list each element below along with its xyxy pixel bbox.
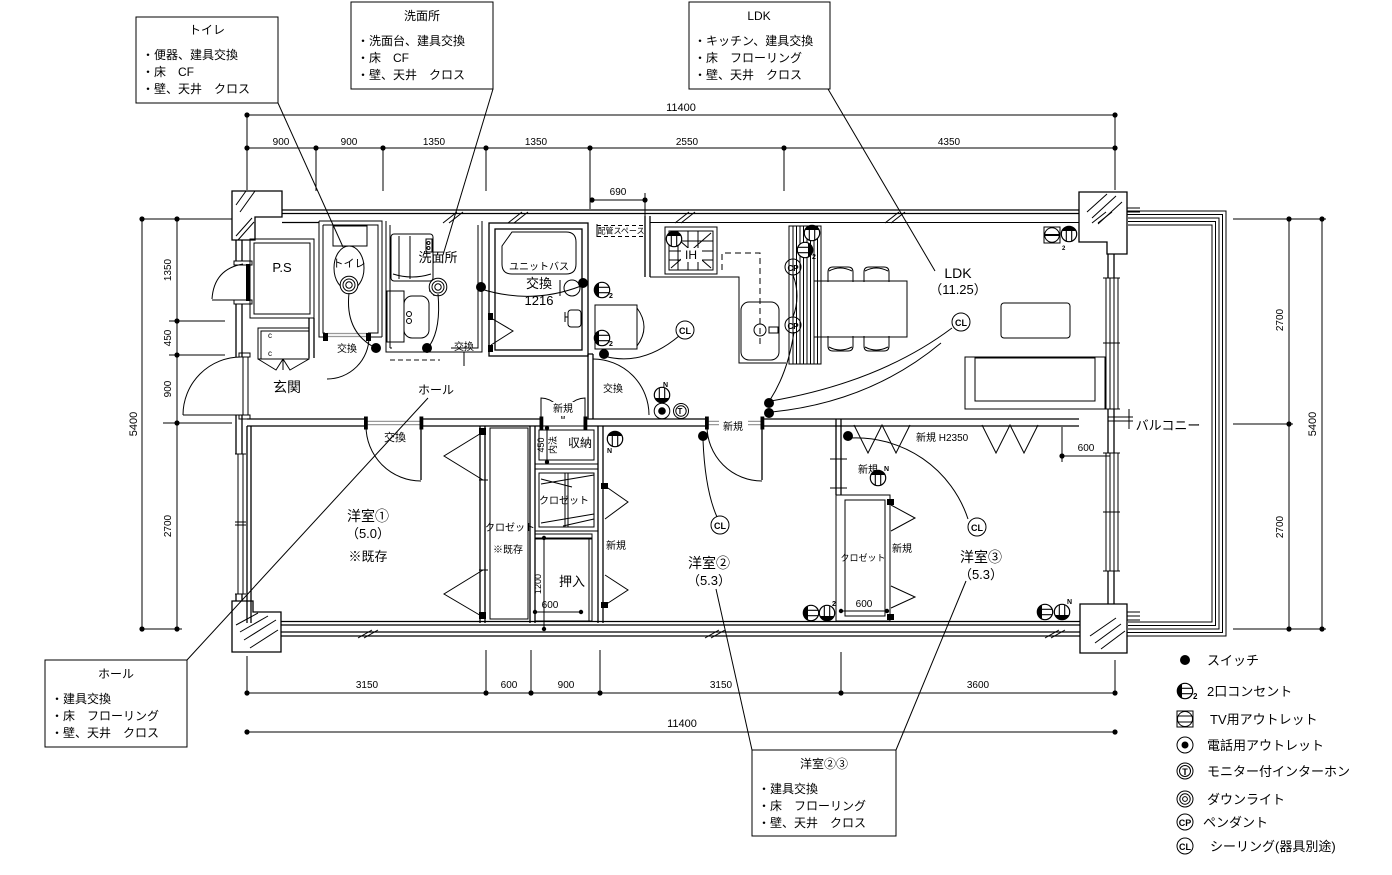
svg-text:交換: 交換: [454, 340, 474, 353]
svg-text:2700: 2700: [1275, 515, 1286, 538]
svg-text:洋室①: 洋室①: [347, 508, 389, 524]
svg-text:・建具交換: ・建具交換: [51, 691, 111, 706]
svg-text:配管スペース: 配管スペース: [597, 226, 644, 236]
svg-text:900: 900: [273, 137, 290, 148]
svg-text:・床 フローリング: ・床 フローリング: [758, 799, 866, 813]
svg-text:3150: 3150: [356, 680, 379, 691]
svg-text:新規 H2350: 新規 H2350: [916, 431, 969, 444]
svg-text:T: T: [678, 407, 683, 416]
svg-text:ユニットバス: ユニットバス: [509, 261, 569, 273]
svg-text:2: 2: [609, 293, 613, 300]
svg-text:・キッチン、建具交換: ・キッチン、建具交換: [694, 33, 813, 48]
svg-text:2700: 2700: [163, 514, 174, 537]
svg-text:トイレ: トイレ: [333, 258, 366, 270]
svg-text:玄関: 玄関: [273, 379, 301, 395]
svg-text:2: 2: [812, 254, 816, 261]
svg-text:新規: 新規: [892, 542, 912, 555]
svg-text:・床 CF: ・床 CF: [357, 51, 409, 65]
svg-text:（5.3）: （5.3）: [687, 573, 731, 588]
svg-text:洋室③: 洋室③: [960, 549, 1002, 565]
svg-text:LDK: LDK: [747, 9, 770, 23]
svg-text:クロゼット: クロゼット: [840, 552, 885, 563]
svg-text:900: 900: [341, 137, 358, 148]
svg-text:モニター付インターホン: モニター付インターホン: [1207, 764, 1350, 779]
svg-text:P.S: P.S: [272, 260, 292, 275]
svg-text:2: 2: [832, 601, 836, 608]
svg-text:新規: 新規: [723, 420, 743, 433]
svg-text:新規: 新規: [553, 402, 573, 415]
svg-text:新規: 新規: [606, 539, 626, 552]
svg-text:4350: 4350: [938, 137, 961, 148]
svg-text:洋室②: 洋室②: [688, 555, 730, 571]
svg-text:スイッチ: スイッチ: [1207, 653, 1259, 668]
svg-text:2口コンセント: 2口コンセント: [1207, 684, 1292, 699]
svg-text:690: 690: [610, 187, 627, 198]
svg-text:・便器、建具交換: ・便器、建具交換: [142, 47, 238, 62]
svg-text:ダウンライト: ダウンライト: [1207, 792, 1285, 807]
svg-text:N: N: [1067, 599, 1072, 606]
svg-text:CL: CL: [714, 521, 726, 531]
svg-text:2700: 2700: [1275, 308, 1286, 331]
svg-text:交換: 交換: [603, 382, 623, 395]
svg-text:IH: IH: [685, 248, 697, 262]
svg-text:洗面所: 洗面所: [418, 250, 457, 265]
svg-text:TV用アウトレット: TV用アウトレット: [1210, 712, 1318, 727]
svg-text:クロゼット: クロゼット: [539, 495, 589, 507]
svg-text:シーリング(器具別途): シーリング(器具別途): [1210, 839, 1336, 854]
svg-text:1350: 1350: [423, 137, 446, 148]
svg-text:2: 2: [609, 341, 613, 348]
svg-text:・壁、天井 クロス: ・壁、天井 クロス: [758, 815, 866, 830]
svg-text:450: 450: [536, 437, 546, 452]
svg-text:5400: 5400: [1307, 412, 1319, 436]
svg-text:トイレ: トイレ: [189, 23, 225, 37]
svg-text:（11.25）: （11.25）: [929, 282, 987, 297]
svg-text:1350: 1350: [525, 137, 548, 148]
svg-text:CL: CL: [1179, 842, 1191, 852]
svg-text:600: 600: [856, 599, 873, 610]
svg-text:・洗面台、建具交換: ・洗面台、建具交換: [357, 33, 465, 48]
svg-text:※既存: ※既存: [348, 549, 387, 564]
svg-text:3600: 3600: [967, 680, 990, 691]
svg-text:洗面所: 洗面所: [404, 9, 440, 23]
svg-text:交換: 交換: [337, 342, 357, 355]
svg-text:11400: 11400: [667, 718, 697, 730]
svg-text:洋室②③: 洋室②③: [800, 756, 848, 771]
svg-text:LDK: LDK: [944, 265, 972, 281]
svg-text:クロゼット: クロゼット: [485, 522, 535, 534]
svg-text:c: c: [268, 331, 272, 340]
svg-text:押入: 押入: [559, 574, 585, 589]
svg-text:1200: 1200: [533, 574, 543, 594]
svg-text:N: N: [607, 448, 612, 455]
svg-text:CL: CL: [955, 318, 967, 328]
svg-text:N: N: [884, 466, 889, 473]
svg-text:・床 フローリング: ・床 フローリング: [51, 709, 159, 723]
svg-text:・壁、天井 クロス: ・壁、天井 クロス: [357, 67, 465, 82]
svg-text:11400: 11400: [666, 102, 696, 114]
svg-text:（5.0）: （5.0）: [346, 526, 390, 541]
svg-text:2550: 2550: [676, 137, 699, 148]
svg-text:・壁、天井 クロス: ・壁、天井 クロス: [51, 725, 159, 740]
svg-text:1350: 1350: [163, 258, 174, 281]
svg-text:CP: CP: [1179, 818, 1192, 828]
svg-text:内法: 内法: [547, 436, 558, 454]
svg-text:収納: 収納: [568, 436, 592, 450]
svg-text:・壁、天井 クロス: ・壁、天井 クロス: [142, 81, 250, 96]
svg-text:交換: 交換: [526, 276, 552, 291]
svg-text:ペンダント: ペンダント: [1203, 815, 1268, 830]
svg-text:600: 600: [1078, 443, 1095, 454]
svg-text:1216: 1216: [525, 293, 554, 308]
svg-text:電話用アウトレット: 電話用アウトレット: [1207, 738, 1324, 753]
svg-text:5400: 5400: [128, 412, 140, 436]
svg-text:600: 600: [501, 680, 518, 691]
svg-text:バルコニー: バルコニー: [1136, 418, 1201, 433]
svg-text:c: c: [268, 349, 272, 358]
svg-text:・建具交換: ・建具交換: [758, 781, 818, 796]
svg-text:900: 900: [163, 380, 174, 397]
svg-text:2: 2: [1193, 692, 1198, 701]
svg-text:T: T: [1182, 767, 1188, 777]
svg-text:450: 450: [163, 329, 174, 346]
svg-text:CP: CP: [787, 264, 799, 273]
svg-text:600: 600: [542, 600, 559, 611]
svg-text:CL: CL: [971, 523, 983, 533]
svg-text:900: 900: [558, 680, 575, 691]
svg-text:・壁、天井 クロス: ・壁、天井 クロス: [694, 67, 802, 82]
svg-text:・床 CF: ・床 CF: [142, 65, 194, 79]
svg-text:ホール: ホール: [98, 667, 134, 681]
svg-text:ホール: ホール: [418, 383, 454, 397]
svg-text:3150: 3150: [710, 680, 733, 691]
svg-text:・床 フローリング: ・床 フローリング: [694, 51, 802, 65]
svg-text:CP: CP: [787, 322, 799, 331]
svg-text:※既存: ※既存: [493, 543, 523, 556]
svg-text:N: N: [663, 382, 668, 389]
svg-text:CL: CL: [679, 326, 691, 336]
svg-text:（5.3）: （5.3）: [959, 567, 1003, 582]
